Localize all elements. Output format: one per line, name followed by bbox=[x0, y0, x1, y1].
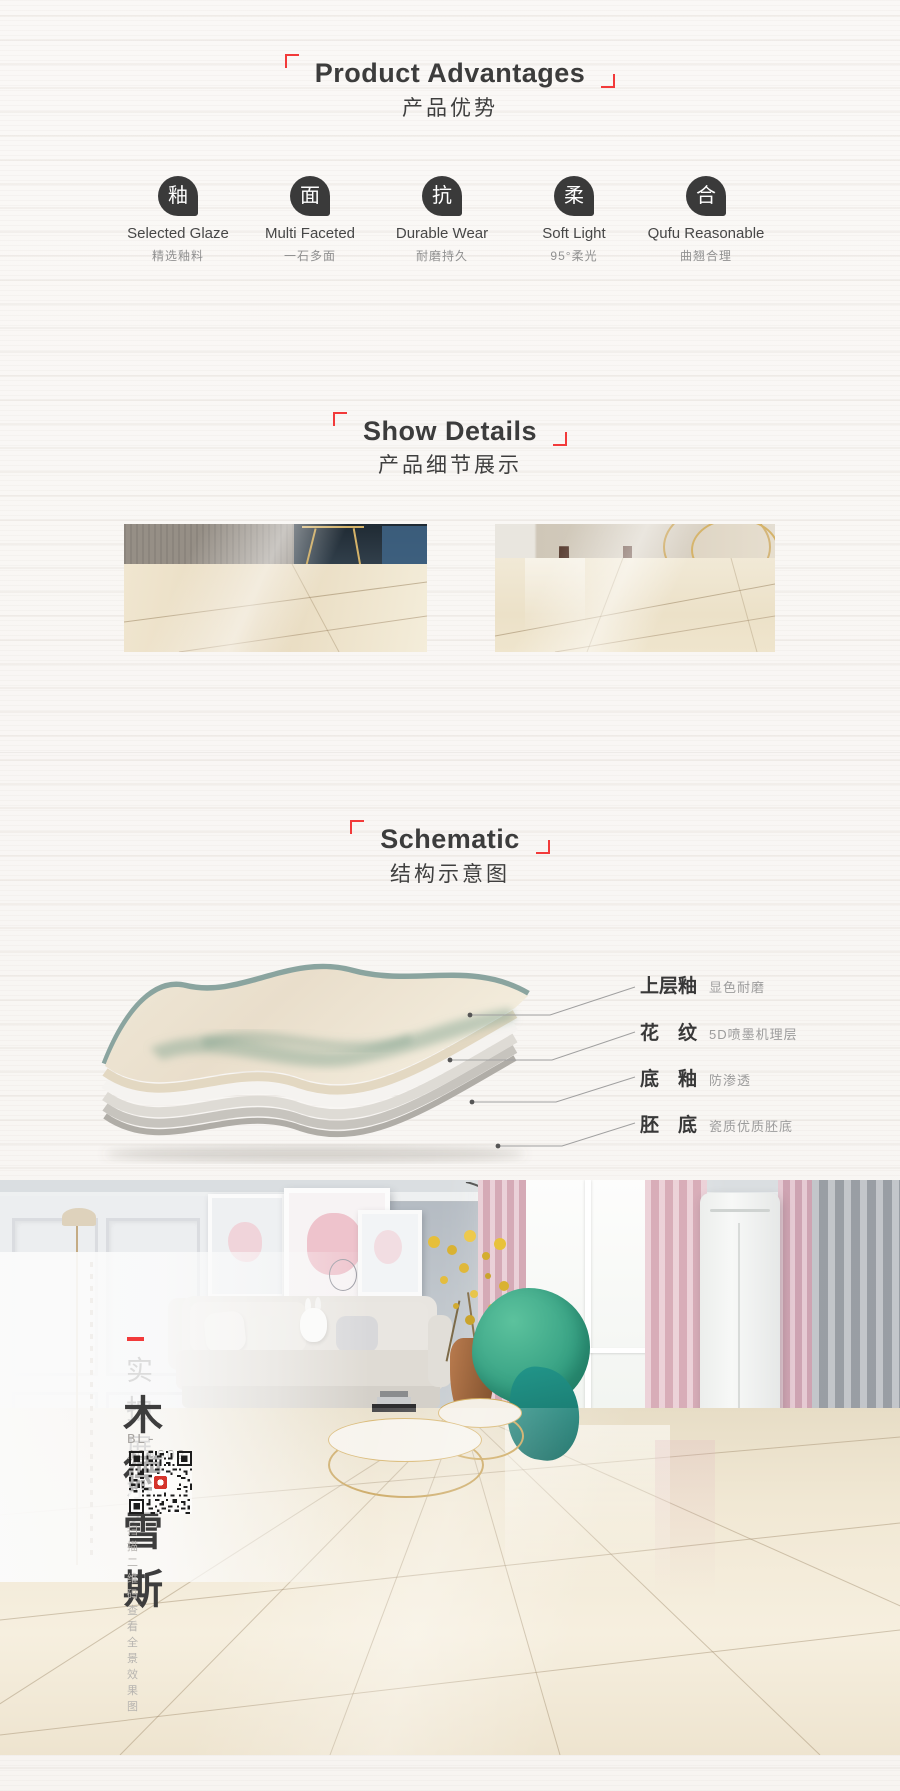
details-title-en: Show Details bbox=[363, 416, 537, 446]
layer-label-row: 花 纹5D喷墨机理层 bbox=[640, 1018, 798, 1045]
section-divider bbox=[0, 752, 900, 753]
book-stack bbox=[380, 1391, 408, 1397]
layer-desc: 瓷质优质胚底 bbox=[709, 1119, 793, 1134]
advantage-label-zh: 精选釉料 bbox=[112, 247, 244, 264]
layer-label-row: 胚 底瓷质优质胚底 bbox=[640, 1110, 793, 1137]
schematic-header: Schematic bbox=[0, 824, 900, 855]
layer-desc: 防渗透 bbox=[709, 1073, 751, 1088]
details-title-zh: 产品细节展示 bbox=[0, 449, 900, 479]
corner-bracket-top-left-icon bbox=[285, 54, 299, 68]
advantages-title-en: Product Advantages bbox=[315, 58, 586, 88]
advantage-item: 面 Multi Faceted 一石多面 bbox=[244, 176, 376, 264]
fit-drop-icon: 合 bbox=[686, 176, 726, 216]
advantages-title: Product Advantages bbox=[315, 58, 586, 89]
advantage-label-zh: 95°柔光 bbox=[508, 247, 640, 264]
showcase-photo: 实拍展示2 木德雪斯 BL-1C8002 bbox=[0, 1180, 900, 1755]
yellow-flowers bbox=[428, 1236, 440, 1248]
schematic-title-en: Schematic bbox=[380, 824, 520, 854]
advantage-item: 柔 Soft Light 95°柔光 bbox=[508, 176, 640, 264]
layer-label-row: 上层釉显色耐磨 bbox=[640, 971, 765, 998]
glaze-drop-icon: 釉 bbox=[158, 176, 198, 216]
corner-bracket-top-left-icon bbox=[350, 820, 364, 834]
advantage-label-zh: 耐磨持久 bbox=[376, 247, 508, 264]
layer-name: 底 釉 bbox=[640, 1069, 697, 1090]
product-detail-page: Product Advantages 产品优势 釉 Selected Glaze… bbox=[0, 0, 900, 1791]
floor-gloss bbox=[124, 524, 427, 652]
layer-name: 花 纹 bbox=[640, 1023, 697, 1044]
icon-char: 面 bbox=[300, 185, 320, 207]
schematic-title-zh: 结构示意图 bbox=[0, 858, 900, 888]
advantage-item: 合 Qufu Reasonable 曲翘合理 bbox=[640, 176, 772, 264]
white-text-overlay bbox=[0, 1252, 370, 1582]
advantage-item: 抗 Durable Wear 耐磨持久 bbox=[376, 176, 508, 264]
advantage-label-en: Qufu Reasonable bbox=[640, 225, 772, 242]
detail-photo-floor-right bbox=[495, 524, 775, 652]
corner-bracket-bottom-right-icon bbox=[553, 432, 567, 446]
corner-bracket-top-left-icon bbox=[333, 412, 347, 426]
soft-drop-icon: 柔 bbox=[554, 176, 594, 216]
layer-desc: 5D喷墨机理层 bbox=[709, 1027, 798, 1042]
layer-name: 胚 底 bbox=[640, 1115, 697, 1136]
icon-char: 釉 bbox=[168, 185, 188, 207]
red-dash-icon bbox=[127, 1337, 144, 1341]
ceiling bbox=[0, 1180, 900, 1192]
qr-caption: 扫描二维码查看全景效果图 bbox=[127, 1522, 139, 1714]
facet-drop-icon: 面 bbox=[290, 176, 330, 216]
book-stack bbox=[377, 1397, 411, 1404]
tile-layers-illustration bbox=[90, 898, 710, 1168]
advantage-label-en: Multi Faceted bbox=[244, 225, 376, 242]
qr-code bbox=[129, 1451, 192, 1514]
icon-char: 合 bbox=[696, 185, 716, 207]
schematic-title: Schematic bbox=[380, 824, 520, 855]
details-title: Show Details bbox=[363, 416, 537, 447]
corner-bracket-bottom-right-icon bbox=[601, 74, 615, 88]
details-header: Show Details bbox=[0, 416, 900, 447]
advantage-label-en: Soft Light bbox=[508, 225, 640, 242]
window-mullion bbox=[585, 1180, 591, 1428]
frame-art-pink bbox=[374, 1230, 402, 1264]
advantages-title-zh: 产品优势 bbox=[0, 92, 900, 122]
layer-name: 上层釉 bbox=[640, 976, 697, 997]
corner-bracket-bottom-right-icon bbox=[536, 840, 550, 854]
lamp-shade bbox=[62, 1208, 96, 1226]
advantage-label-zh: 曲翘合理 bbox=[640, 247, 772, 264]
advantages-header: Product Advantages bbox=[0, 58, 900, 89]
advantage-label-en: Selected Glaze bbox=[112, 225, 244, 242]
advantage-label-en: Durable Wear bbox=[376, 225, 508, 242]
floor-gloss bbox=[495, 524, 775, 652]
ac-vent bbox=[710, 1209, 770, 1212]
advantages-row: 釉 Selected Glaze 精选釉料 面 Multi Faceted 一石… bbox=[112, 176, 772, 264]
advantage-label-zh: 一石多面 bbox=[244, 247, 376, 264]
detail-photo-floor-left bbox=[124, 524, 427, 652]
icon-char: 抗 bbox=[432, 185, 452, 207]
wear-drop-icon: 抗 bbox=[422, 176, 462, 216]
icon-char: 柔 bbox=[564, 185, 584, 207]
layer-desc: 显色耐磨 bbox=[709, 980, 765, 995]
layer-label-row: 底 釉防渗透 bbox=[640, 1064, 751, 1091]
advantage-item: 釉 Selected Glaze 精选釉料 bbox=[112, 176, 244, 264]
